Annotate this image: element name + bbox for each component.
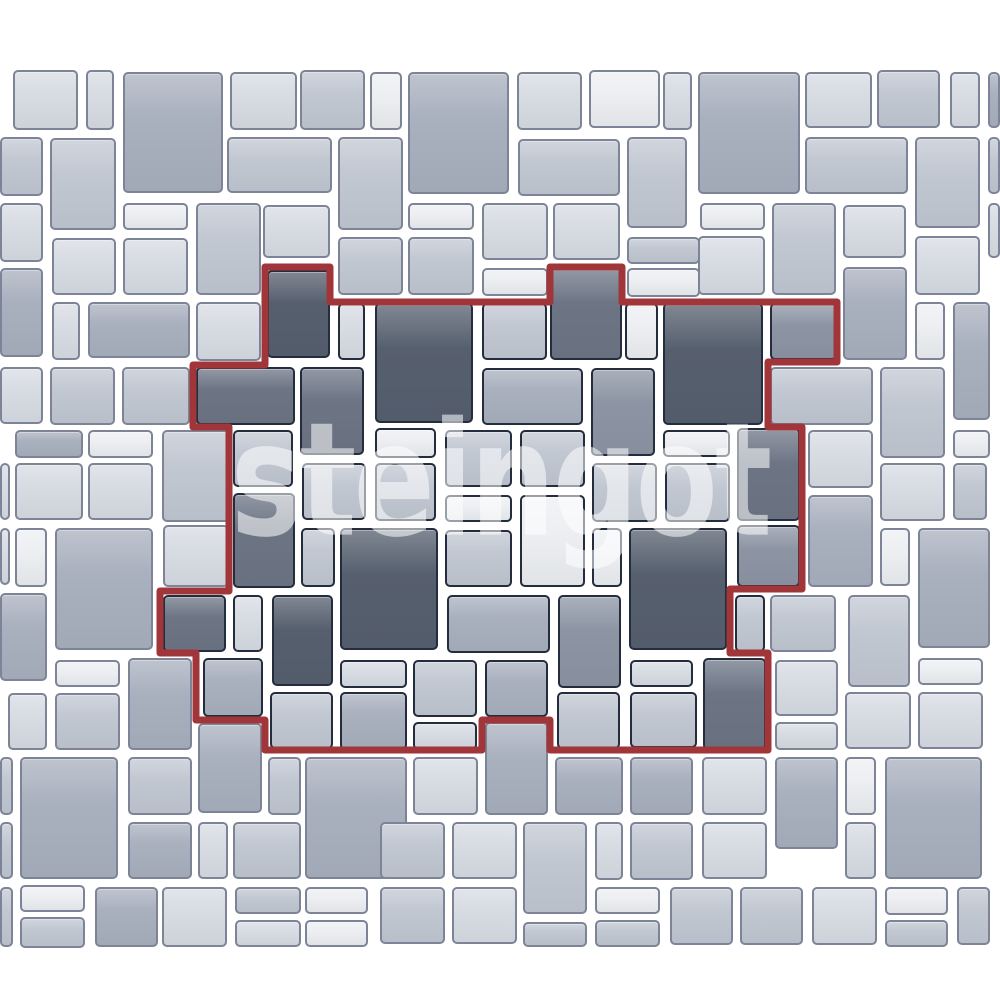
paving-tile bbox=[735, 595, 765, 652]
paving-tile bbox=[915, 302, 945, 360]
paving-tile bbox=[848, 595, 910, 687]
paving-tile bbox=[880, 528, 910, 586]
paving-tile bbox=[123, 203, 188, 230]
paving-tile bbox=[595, 887, 660, 914]
paving-tile bbox=[375, 303, 473, 423]
paving-tile bbox=[233, 430, 293, 487]
paving-tile bbox=[50, 367, 115, 425]
paving-tile bbox=[300, 367, 364, 455]
paving-tile bbox=[128, 822, 192, 879]
paving-tile bbox=[808, 495, 873, 587]
paving-tile bbox=[880, 463, 945, 521]
paving-tile bbox=[915, 137, 980, 228]
paving-tile bbox=[772, 203, 836, 295]
paving-tile bbox=[482, 203, 548, 260]
paving-tile bbox=[55, 693, 120, 750]
paving-tile bbox=[95, 887, 158, 947]
paving-tile bbox=[413, 757, 478, 815]
paving-layout-scheme: steingot bbox=[0, 0, 1000, 1000]
paving-tile bbox=[702, 757, 767, 815]
paving-tile bbox=[338, 237, 403, 295]
paving-tile bbox=[737, 428, 800, 521]
paving-tile bbox=[338, 303, 365, 360]
paving-tile bbox=[13, 70, 78, 130]
paving-tile bbox=[845, 822, 876, 879]
paving-tile bbox=[263, 205, 330, 258]
paving-tile bbox=[775, 757, 838, 849]
paving-tile bbox=[203, 658, 263, 717]
paving-tile bbox=[953, 430, 990, 458]
paving-tile bbox=[452, 822, 517, 879]
paving-tile bbox=[301, 528, 335, 587]
paving-tile bbox=[630, 692, 697, 748]
paving-tile bbox=[520, 430, 585, 487]
paving-tile bbox=[15, 463, 83, 520]
paving-tile bbox=[8, 693, 47, 750]
paving-tile bbox=[20, 757, 118, 879]
paving-tile bbox=[408, 72, 509, 194]
paving-tile bbox=[338, 137, 403, 230]
paving-tile bbox=[375, 428, 436, 458]
paving-tile bbox=[485, 722, 548, 815]
paving-tile bbox=[0, 203, 43, 262]
paving-tile bbox=[0, 367, 43, 424]
paving-tile bbox=[305, 887, 368, 914]
paving-tile bbox=[52, 238, 116, 295]
paving-tile bbox=[627, 237, 700, 264]
paving-tile bbox=[447, 595, 550, 653]
paving-tile bbox=[630, 822, 693, 880]
paving-tile bbox=[703, 658, 766, 750]
paving-tile bbox=[0, 137, 43, 196]
paving-tile bbox=[737, 525, 800, 587]
paving-tile bbox=[627, 137, 687, 228]
paving-tile bbox=[957, 887, 990, 945]
paving-tile bbox=[630, 660, 693, 687]
paving-tile bbox=[375, 463, 436, 521]
paving-tile bbox=[812, 887, 877, 945]
paving-tile bbox=[775, 722, 838, 750]
paving-tile bbox=[877, 70, 940, 128]
paving-tile bbox=[128, 658, 192, 750]
paving-tile bbox=[408, 203, 474, 230]
paving-tile bbox=[550, 268, 622, 360]
paving-tile bbox=[88, 302, 190, 358]
paving-tile bbox=[845, 692, 911, 749]
paving-tile bbox=[413, 722, 477, 750]
paving-tile bbox=[591, 368, 655, 456]
paving-tile bbox=[482, 303, 547, 360]
paving-tile bbox=[885, 757, 982, 879]
paving-tile bbox=[233, 822, 301, 879]
paving-tile bbox=[553, 203, 620, 260]
paving-tile bbox=[270, 692, 333, 749]
paving-tile bbox=[235, 887, 301, 914]
paving-tile bbox=[843, 267, 907, 360]
paving-tile bbox=[88, 463, 153, 520]
paving-tile bbox=[123, 238, 188, 295]
paving-tile bbox=[0, 593, 47, 681]
paving-tile bbox=[305, 920, 368, 947]
paving-tile bbox=[950, 72, 980, 128]
paving-tile bbox=[595, 822, 623, 880]
paving-tile bbox=[123, 72, 223, 193]
paving-tile bbox=[805, 72, 872, 128]
paving-tile bbox=[885, 920, 948, 947]
paving-tile bbox=[15, 528, 47, 587]
paving-tile bbox=[0, 887, 13, 947]
paving-tile bbox=[445, 530, 512, 587]
paving-tile bbox=[196, 302, 261, 361]
paving-tile bbox=[918, 658, 983, 685]
paving-tile bbox=[300, 70, 365, 130]
paving-tile bbox=[163, 525, 229, 587]
paving-tile bbox=[230, 72, 297, 130]
paving-tile bbox=[557, 692, 620, 749]
paving-tile bbox=[988, 137, 1000, 194]
paving-tile bbox=[523, 822, 587, 914]
paving-tile bbox=[589, 70, 660, 128]
paving-tile bbox=[52, 302, 80, 360]
paving-tile bbox=[770, 595, 836, 652]
paving-tile bbox=[272, 595, 333, 686]
paving-tile bbox=[235, 920, 301, 947]
paving-tile bbox=[918, 692, 983, 749]
paving-tile bbox=[740, 887, 803, 945]
paving-tile bbox=[196, 203, 261, 295]
paving-tile bbox=[523, 922, 587, 947]
paving-tile bbox=[625, 303, 658, 360]
paving-tile bbox=[50, 138, 116, 230]
paving-tile bbox=[227, 137, 332, 193]
paving-tile bbox=[86, 70, 114, 130]
paving-tile bbox=[482, 268, 548, 296]
paving-tile bbox=[55, 528, 153, 650]
paving-tile bbox=[918, 528, 990, 648]
paving-tile bbox=[267, 270, 330, 358]
paving-tile bbox=[196, 367, 295, 425]
paving-tile bbox=[380, 887, 445, 944]
paving-tile bbox=[413, 660, 477, 717]
paving-tile bbox=[592, 463, 657, 522]
paving-tile bbox=[843, 205, 906, 258]
paving-tile bbox=[0, 528, 10, 585]
paving-tile bbox=[445, 430, 512, 487]
paving-tile bbox=[808, 430, 873, 488]
paving-tile bbox=[558, 595, 621, 688]
paving-tile bbox=[0, 463, 10, 520]
paving-tile bbox=[128, 757, 192, 815]
paving-tile bbox=[663, 430, 730, 457]
paving-tile bbox=[845, 757, 876, 815]
paving-tile bbox=[198, 822, 228, 879]
paving-tile bbox=[408, 237, 474, 295]
paving-tile bbox=[518, 139, 620, 196]
paving-tile bbox=[15, 430, 83, 458]
paving-tile bbox=[88, 430, 153, 458]
paving-tile bbox=[629, 528, 727, 650]
paving-tile bbox=[665, 463, 730, 522]
paving-tile bbox=[370, 72, 402, 130]
paving-tile bbox=[663, 72, 692, 130]
paving-tile bbox=[770, 303, 837, 360]
paving-tile bbox=[702, 822, 767, 879]
paving-tile bbox=[485, 660, 548, 717]
paving-tile bbox=[988, 72, 1000, 128]
paving-tile bbox=[268, 757, 301, 815]
paving-tile bbox=[698, 236, 765, 295]
paving-tile bbox=[700, 203, 765, 230]
paving-tile bbox=[340, 692, 407, 750]
paving-tile bbox=[380, 822, 445, 879]
paving-tile bbox=[880, 367, 945, 458]
paving-tile bbox=[233, 595, 263, 652]
paving-tile bbox=[953, 463, 987, 520]
paving-tile bbox=[0, 268, 43, 357]
paving-tile bbox=[445, 495, 512, 522]
paving-tile bbox=[770, 367, 873, 425]
paving-tile bbox=[775, 660, 838, 716]
paving-tile bbox=[452, 887, 517, 944]
paving-tile bbox=[0, 757, 13, 815]
paving-tile bbox=[163, 595, 226, 652]
paving-tile bbox=[627, 268, 700, 297]
paving-tile bbox=[517, 72, 582, 130]
paving-tile bbox=[302, 463, 366, 520]
paving-tile bbox=[630, 757, 693, 815]
paving-tile bbox=[482, 368, 583, 425]
paving-tile bbox=[340, 660, 407, 688]
paving-tile bbox=[520, 495, 585, 587]
paving-tile bbox=[915, 236, 980, 295]
paving-tile bbox=[988, 203, 1000, 258]
paving-tile bbox=[162, 887, 227, 947]
paving-tile bbox=[20, 917, 85, 948]
paving-tile bbox=[233, 493, 295, 588]
paving-tile bbox=[592, 528, 622, 587]
paving-tile bbox=[198, 723, 262, 813]
paving-tile bbox=[805, 137, 908, 194]
paving-tile bbox=[670, 887, 733, 945]
paving-tile bbox=[885, 887, 948, 915]
paving-tile bbox=[20, 885, 85, 912]
paving-tile bbox=[162, 430, 230, 522]
paving-tile bbox=[55, 660, 120, 687]
paving-tile bbox=[595, 920, 660, 947]
paving-tile bbox=[122, 367, 190, 425]
paving-tile bbox=[698, 72, 800, 194]
paving-tile bbox=[555, 757, 623, 815]
paving-tile bbox=[953, 302, 990, 420]
paving-tile bbox=[340, 528, 438, 650]
paving-tile bbox=[0, 822, 13, 879]
paving-tile bbox=[663, 303, 763, 425]
paving-tiles-layer bbox=[0, 0, 1000, 1000]
